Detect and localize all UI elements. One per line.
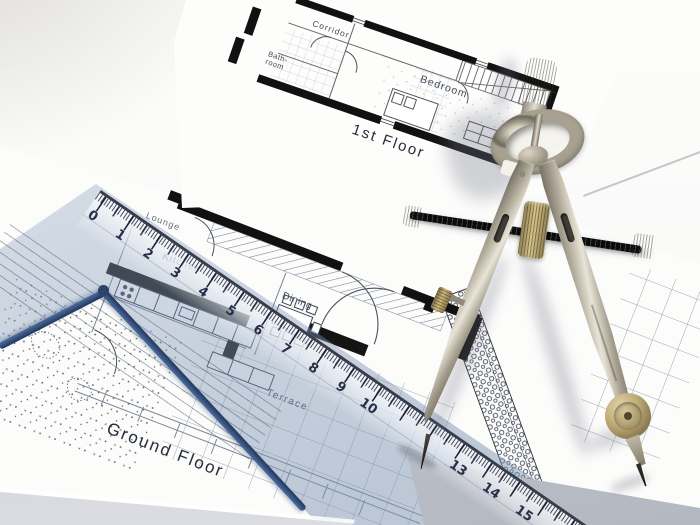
- compass-screw-nut-right: [631, 233, 655, 260]
- compass-left-leg: [415, 158, 536, 426]
- left-leg-slot: [492, 213, 510, 243]
- needle-clamp-knob: [430, 286, 453, 314]
- pencil-holder-taper: [625, 434, 650, 467]
- left-leg-rivet: [518, 170, 526, 178]
- compass-screw-nut-left: [402, 205, 422, 229]
- compass-needle: [419, 433, 431, 469]
- compass-adjust-wheel: [517, 200, 551, 259]
- drafting-compass: [0, 0, 700, 525]
- right-leg-slot: [560, 212, 576, 243]
- right-leg-seam: [591, 305, 617, 382]
- pencil-lead: [635, 463, 648, 488]
- photo-drafting-tools: Lounge Kitchen Dining Terrace Ground Flo…: [0, 0, 700, 525]
- pencil-holder-disc: [605, 393, 651, 439]
- disc-center-screw: [624, 412, 632, 420]
